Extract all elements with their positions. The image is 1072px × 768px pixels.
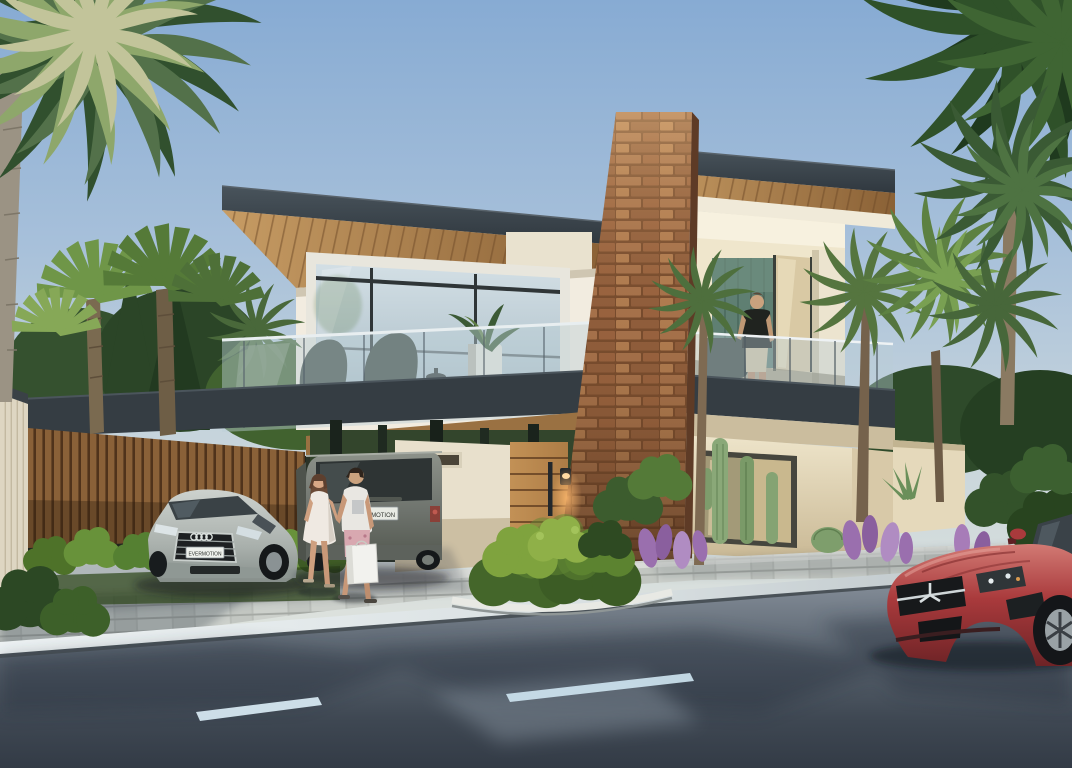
scene-canvas: EVERMOTION EVERMOTION	[0, 0, 1072, 768]
shopping-bag	[346, 541, 378, 584]
villa-exterior-render: EVERMOTION EVERMOTION	[0, 0, 1072, 768]
door-handle	[548, 462, 553, 516]
audi-license-plate-text: EVERMOTION	[189, 552, 222, 558]
barrel-cactus	[811, 527, 845, 553]
